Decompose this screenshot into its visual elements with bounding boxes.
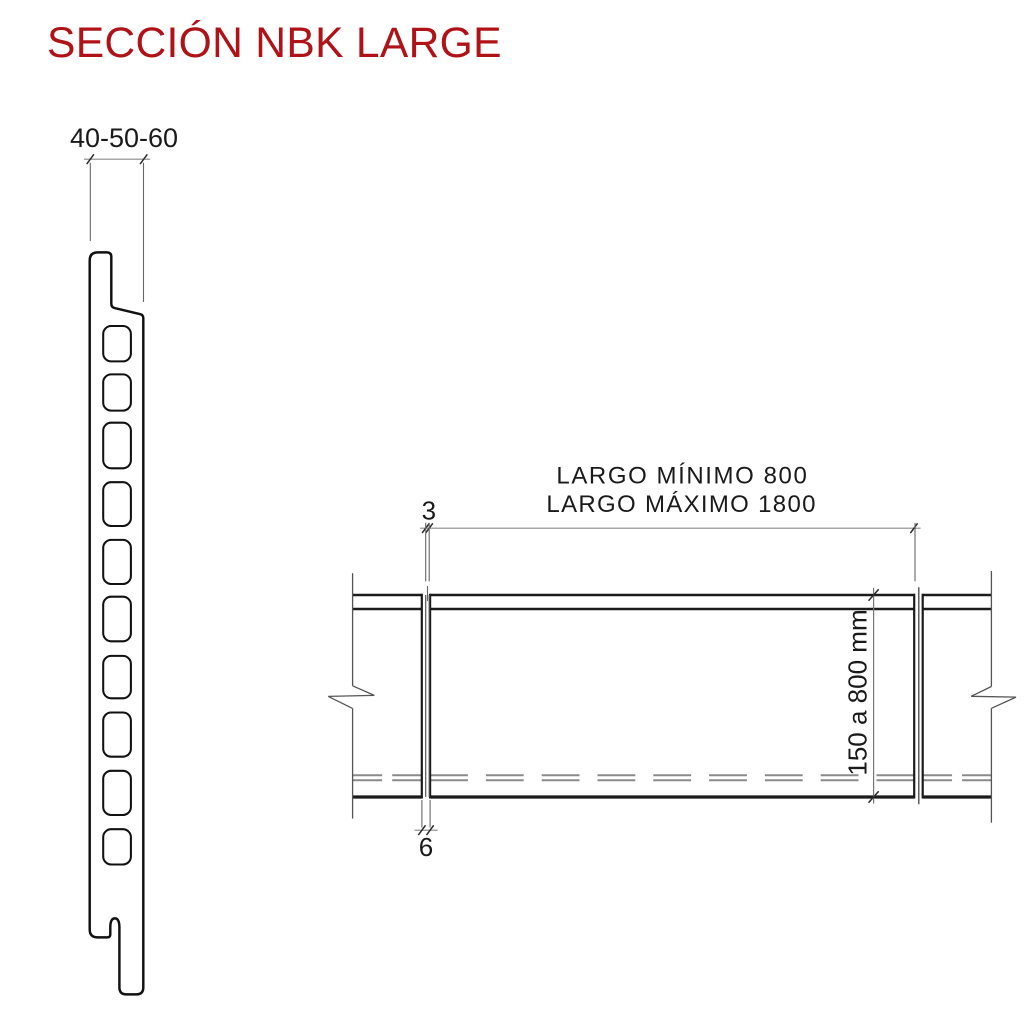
svg-text:150 a 800 mm: 150 a 800 mm <box>843 609 873 775</box>
svg-text:6: 6 <box>419 832 433 862</box>
svg-text:40-50-60: 40-50-60 <box>70 123 178 153</box>
svg-text:SECCIÓN NBK LARGE: SECCIÓN NBK LARGE <box>47 19 502 67</box>
svg-text:LARGO MÁXIMO 1800: LARGO MÁXIMO 1800 <box>546 491 816 518</box>
svg-text:LARGO MÍNIMO 800: LARGO MÍNIMO 800 <box>556 463 808 490</box>
svg-text:3: 3 <box>422 496 436 526</box>
